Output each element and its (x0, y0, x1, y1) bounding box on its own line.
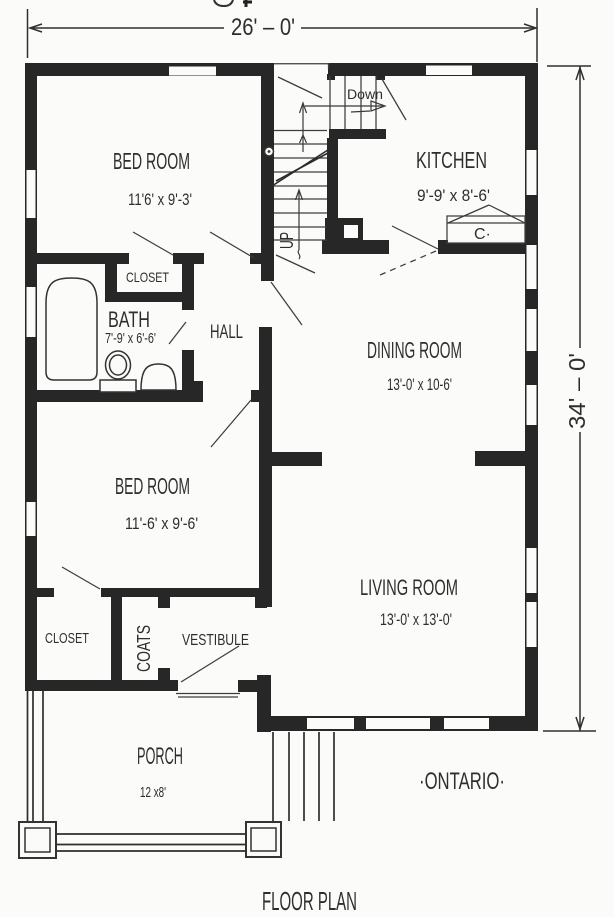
svg-text:BED ROOM: BED ROOM (115, 473, 190, 499)
svg-text:CLOSET: CLOSET (45, 630, 89, 647)
svg-text:13'-0' x 13'-0': 13'-0' x 13'-0' (380, 610, 452, 629)
svg-text:·ONTARIO·: ·ONTARIO· (419, 768, 505, 795)
svg-text:9'-9' x 8'-6': 9'-9' x 8'-6' (417, 186, 490, 205)
svg-text:C·: C· (474, 226, 491, 243)
svg-text:11'-6' x 9'-6': 11'-6' x 9'-6' (125, 514, 198, 533)
svg-text:KITCHEN: KITCHEN (416, 147, 487, 173)
svg-text:COATS: COATS (134, 625, 154, 672)
svg-text:Down: Down (347, 86, 383, 102)
svg-text:11'6' x 9'-3': 11'6' x 9'-3' (128, 190, 192, 209)
svg-text:BATH: BATH (108, 307, 150, 332)
svg-text:VESTIBULE: VESTIBULE (182, 632, 249, 649)
svg-text:HALL: HALL (210, 322, 243, 343)
svg-text:BED ROOM: BED ROOM (113, 148, 190, 174)
svg-text:13'-0' x 10-6': 13'-0' x 10-6' (387, 375, 452, 394)
svg-text:34' – 0': 34' – 0' (564, 353, 590, 429)
svg-text:FLOOR PLAN: FLOOR PLAN (262, 886, 357, 916)
svg-text:DINING ROOM: DINING ROOM (367, 337, 462, 363)
svg-text:26' – 0': 26' – 0' (231, 14, 295, 41)
svg-text:CLOSET: CLOSET (126, 269, 169, 285)
svg-text:LIVING ROOM: LIVING ROOM (360, 575, 458, 600)
svg-text:12 x8': 12 x8' (140, 784, 166, 801)
svg-text:UP: UP (277, 232, 297, 249)
svg-text:7'-9' x 6'-6': 7'-9' x 6'-6' (105, 330, 156, 347)
svg-text:PORCH: PORCH (137, 743, 183, 770)
